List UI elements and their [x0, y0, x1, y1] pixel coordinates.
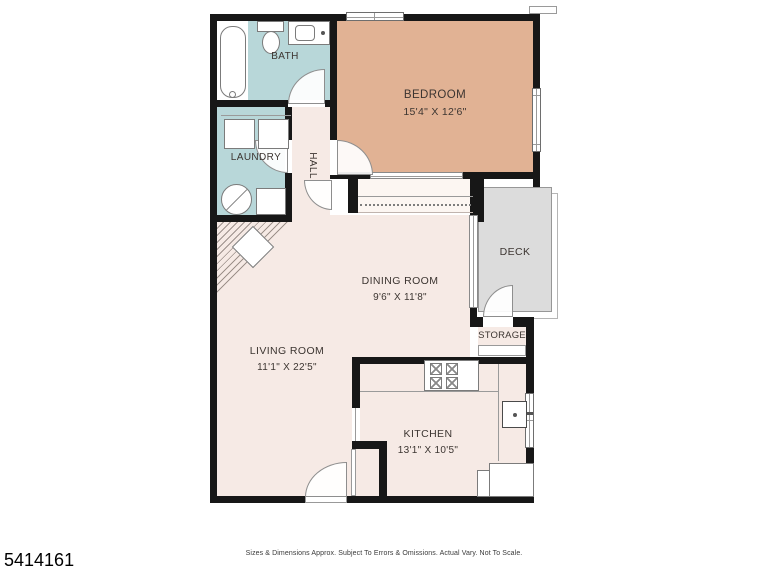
hall-label-wrap: HALL [296, 143, 328, 187]
laundry-counter-line [221, 115, 291, 116]
living-room-dimensions: 11'1" X 22'5" [217, 362, 357, 373]
kitchen-closet-door [351, 449, 356, 496]
kitchen-faucet-icon [527, 412, 533, 415]
kitchen-counter-edge-top [360, 391, 499, 392]
closet-rod-dashed [360, 204, 471, 206]
bedroom-right-wall-upper [533, 14, 540, 88]
dryer-icon [258, 119, 289, 149]
stove-icon [424, 360, 479, 391]
storage-top-wall-left [472, 317, 483, 327]
dining-room-dimensions: 9'6" X 11'8" [330, 292, 470, 303]
bath-bottom-wall-right [325, 100, 330, 107]
kitchen-entry-line [355, 408, 356, 441]
top-right-vent-icon [529, 6, 557, 14]
floor-plan: BATH LAUNDRY HALL BEDROOM 15'4" X 12'6" … [0, 0, 768, 576]
front-door-threshold [305, 496, 347, 503]
bedroom-top-window-icon [346, 12, 404, 21]
living-room-label: LIVING ROOM [217, 345, 357, 357]
bedroom-door-opening [330, 140, 337, 175]
storage-door-icon [478, 345, 526, 356]
bedroom-right-wall-lower [533, 152, 540, 187]
laundry-bottom-wall [210, 215, 292, 222]
dining-deck-slider-icon [469, 215, 478, 308]
storage-label: STORAGE [476, 330, 528, 341]
bottom-wall [210, 496, 534, 503]
disclaimer-text: Sizes & Dimensions Approx. Subject To Er… [0, 550, 768, 557]
dining-deck-wall-upper [470, 179, 477, 215]
bedroom-label: BEDROOM [337, 89, 533, 101]
kitchen-dimensions: 13'1" X 10'5" [358, 445, 498, 456]
deck-storage-door-opening [483, 317, 513, 327]
photo-id: 5414161 [4, 550, 74, 571]
dining-room-label: DINING ROOM [330, 275, 470, 287]
bath-bedroom-wall [330, 14, 337, 140]
bath-label: BATH [253, 51, 317, 62]
kitchen-counter-step-icon [477, 470, 490, 497]
kitchen-label: KITCHEN [358, 428, 498, 440]
deck-label: DECK [478, 246, 552, 258]
top-wall-right [404, 14, 540, 21]
bathtub-icon [220, 26, 246, 98]
washer-icon [224, 119, 255, 149]
left-wall [210, 14, 217, 503]
water-heater-icon [221, 184, 252, 215]
closet-sliding-doors-icon [370, 172, 463, 179]
bedroom-right-window-icon [532, 88, 541, 152]
bathtub-faucet-icon [229, 91, 236, 98]
bath-bottom-wall-left [210, 100, 288, 107]
hall-label: HALL [307, 152, 318, 179]
kitchen-right-wall-upper [526, 317, 534, 393]
closet-shelf-line [358, 196, 473, 197]
bath-sink-drain-icon [321, 31, 325, 35]
kitchen-counter-edge-right [498, 364, 499, 461]
laundry-label: LAUNDRY [216, 152, 296, 163]
bath-sink-icon [295, 25, 315, 41]
closet-bottom-line [358, 212, 473, 213]
refrigerator-icon [489, 463, 534, 497]
laundry-tub-icon [256, 188, 286, 215]
bedroom-dimensions: 15'4" X 12'6" [337, 106, 533, 118]
top-wall-left [210, 14, 346, 21]
kitchen-sink-icon [502, 401, 527, 428]
closet-left-wall [348, 172, 358, 213]
